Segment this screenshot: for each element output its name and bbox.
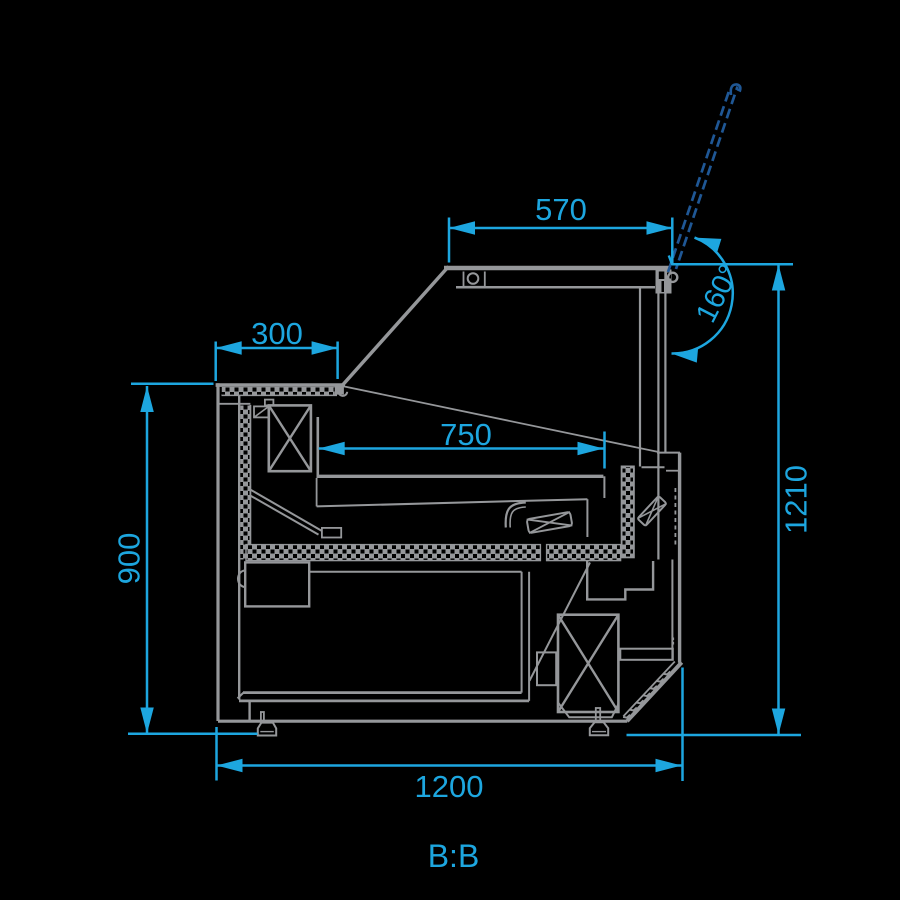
svg-text:B:B: B:B: [428, 838, 480, 874]
svg-text:750: 750: [440, 417, 492, 452]
svg-text:300: 300: [251, 316, 303, 351]
svg-text:1200: 1200: [415, 769, 484, 804]
svg-text:570: 570: [535, 192, 587, 227]
svg-text:1210: 1210: [779, 465, 814, 534]
svg-text:900: 900: [112, 533, 147, 585]
